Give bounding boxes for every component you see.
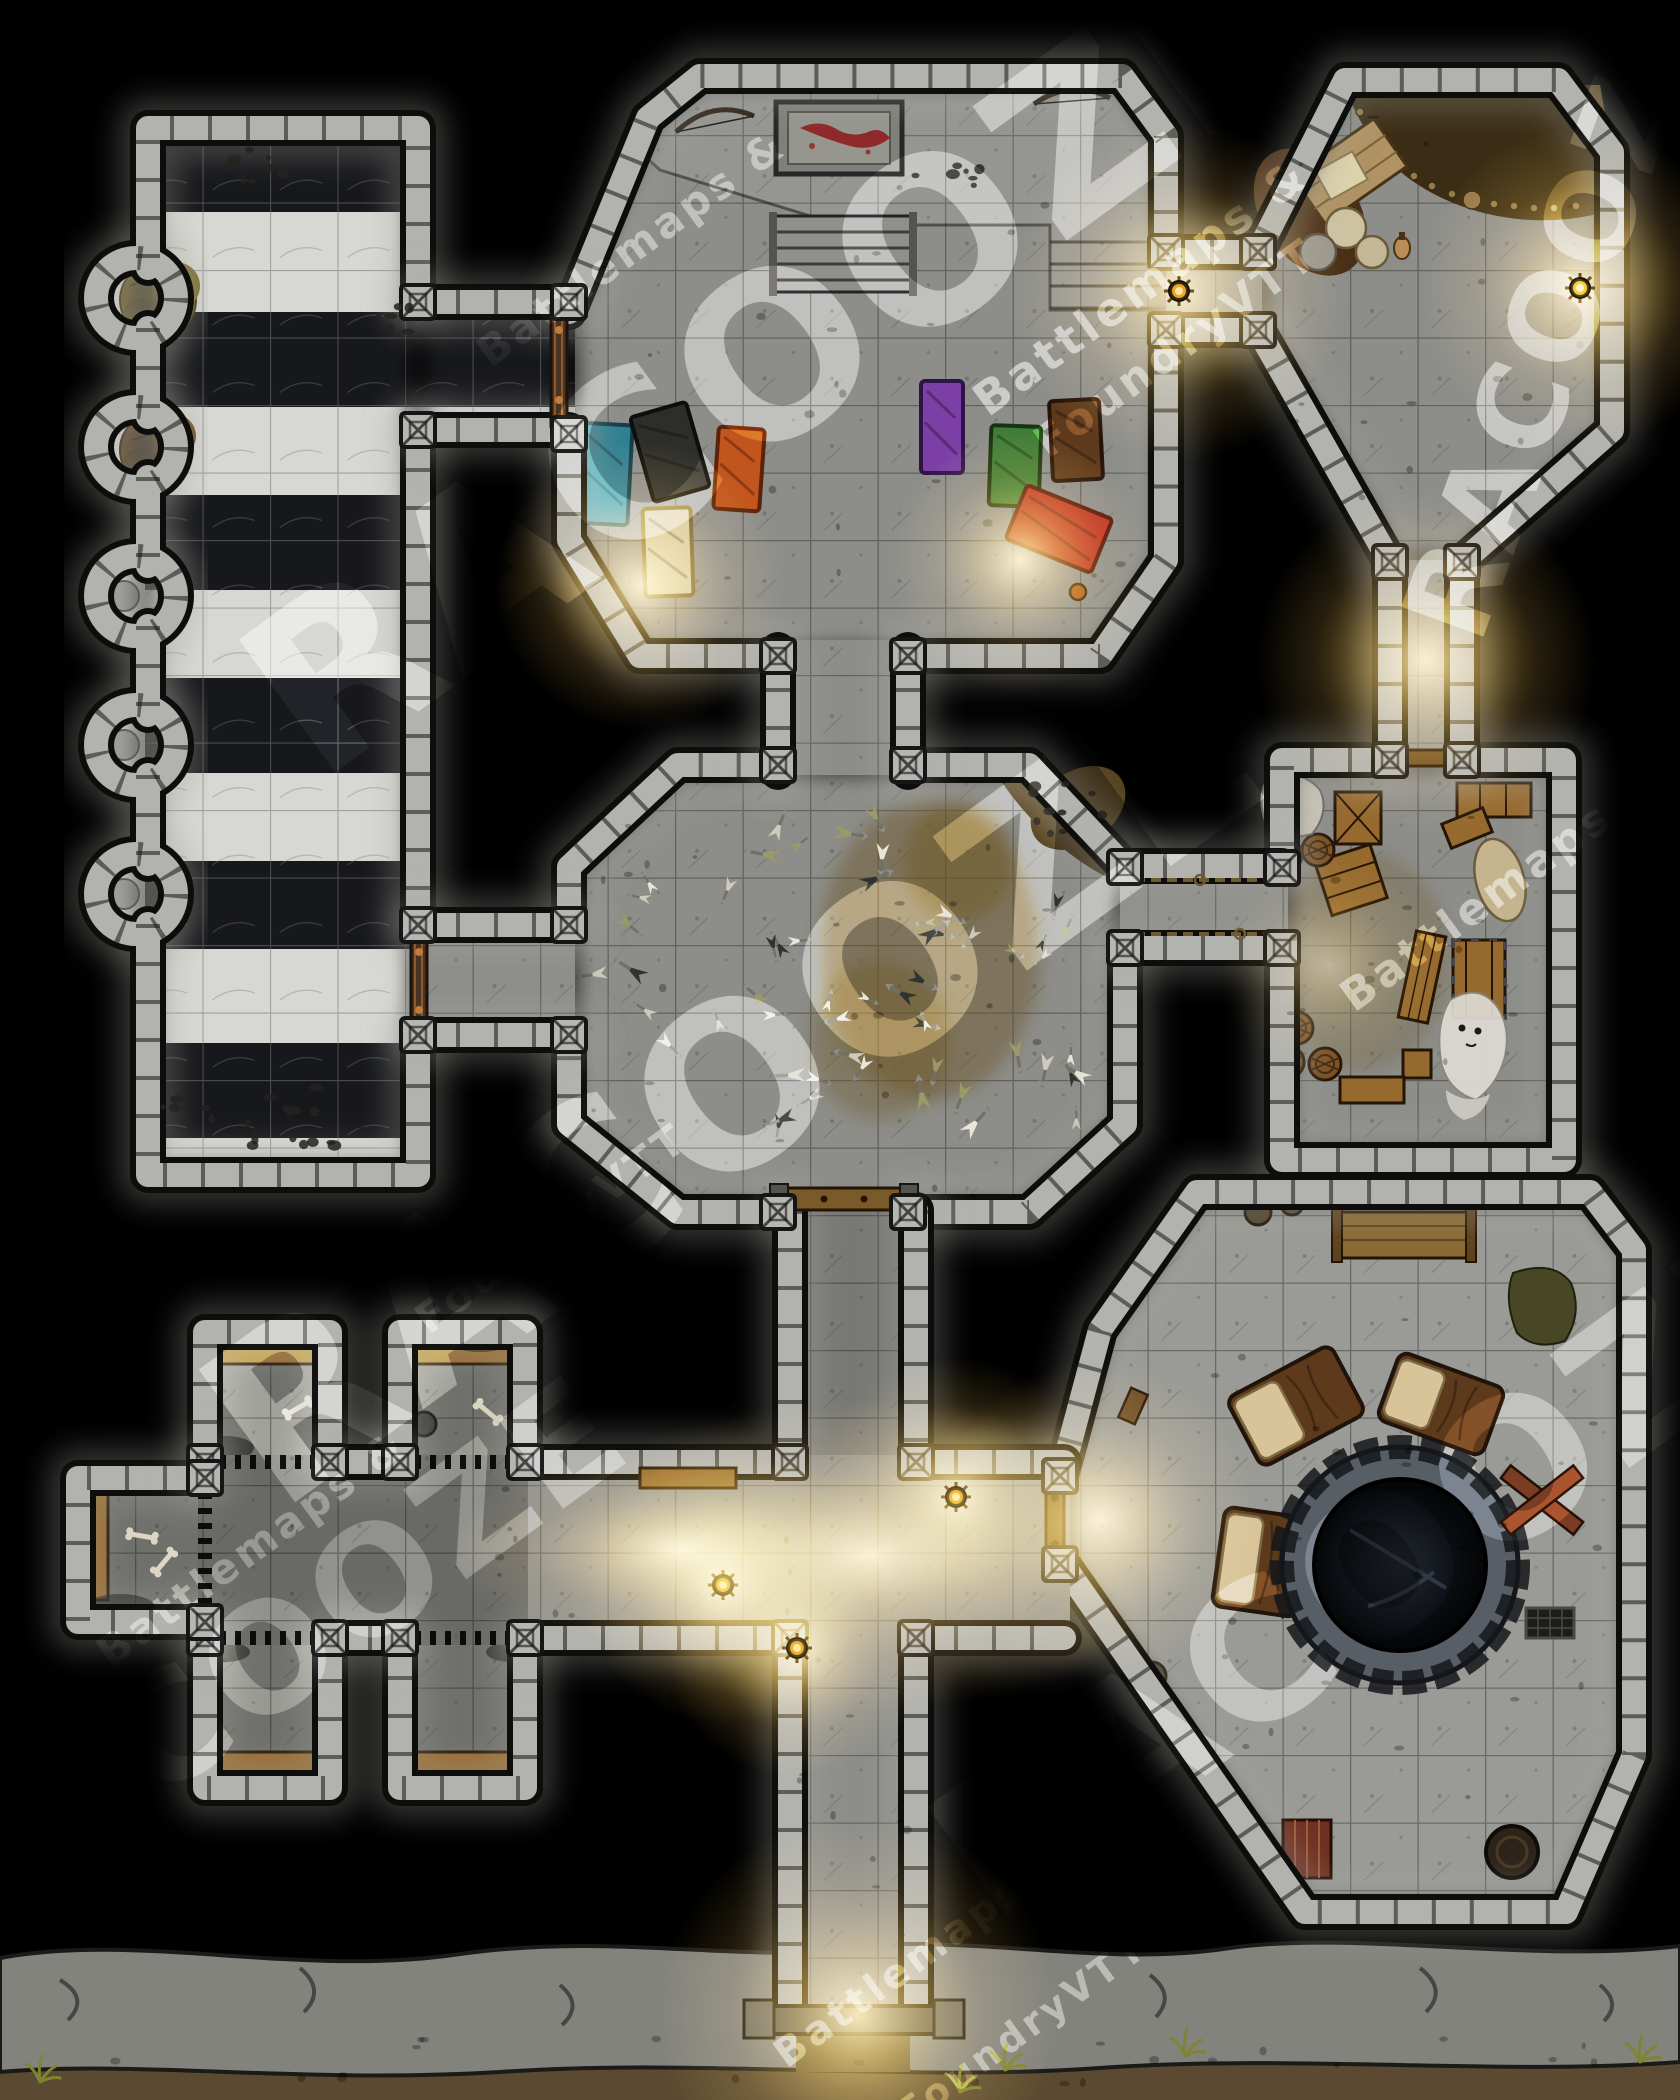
rubble-stone [310, 1107, 320, 1117]
pebble [1007, 229, 1015, 235]
rubble-stone [246, 179, 257, 184]
pillar [188, 1605, 222, 1639]
pebble [1297, 1537, 1303, 1541]
pebble [625, 824, 631, 828]
pebble [1115, 561, 1126, 567]
rubble-stone [245, 147, 254, 153]
rubble-stone [267, 164, 275, 173]
pebble [1269, 1728, 1274, 1736]
rubble-stone [971, 183, 977, 188]
pebble [1291, 419, 1299, 424]
rubble-stone [359, 1126, 365, 1131]
pebble [797, 1777, 803, 1783]
rubble-stone [952, 163, 962, 170]
pebble [1040, 202, 1049, 209]
pillar [761, 1195, 795, 1229]
pebble [652, 2036, 661, 2042]
pebble [657, 1119, 665, 1123]
pebble [1290, 934, 1298, 941]
cloth-pile [1300, 234, 1336, 270]
pillar [1043, 1459, 1077, 1493]
pillar [552, 1018, 586, 1052]
pebble [1287, 1011, 1296, 1015]
pebble [1465, 1795, 1470, 1799]
rubble-stone [173, 1097, 185, 1102]
pebble [1009, 954, 1015, 963]
pebble [1259, 2047, 1266, 2056]
pebble [1033, 1039, 1042, 1045]
pillar [1149, 235, 1183, 269]
pillar [761, 748, 795, 782]
pebble [1478, 279, 1486, 285]
pebble [1312, 1426, 1319, 1431]
pillar [899, 1445, 933, 1479]
pebble [878, 1064, 882, 1068]
clay-jug [1070, 584, 1086, 600]
pebble [1591, 2058, 1598, 2067]
pebble [830, 1811, 836, 1820]
pebble [950, 974, 961, 981]
pebble [1330, 877, 1341, 884]
lantern-icon [782, 1633, 812, 1663]
pebble [1222, 1654, 1229, 1659]
pillar [1241, 313, 1275, 347]
pebble [1080, 2078, 1086, 2087]
pebble [1401, 1318, 1408, 1321]
pebble [870, 1856, 876, 1862]
pebble [601, 876, 606, 885]
pebble [624, 872, 633, 877]
rubble-stone [1097, 811, 1107, 819]
pebble [894, 901, 904, 906]
pebble [810, 1091, 817, 1098]
pebble [897, 1820, 903, 1823]
pebble [507, 1527, 512, 1531]
pebble [1360, 420, 1367, 424]
pillar [1445, 743, 1479, 777]
rubble-stone [1061, 781, 1070, 787]
pebble [648, 353, 652, 357]
pillar [1043, 1547, 1077, 1581]
pebble [827, 327, 838, 332]
pebble [1300, 1008, 1306, 1012]
rubble-stone [394, 303, 403, 310]
rubble-stone [228, 155, 235, 162]
pebble [412, 2045, 421, 2049]
pebble [1406, 401, 1417, 405]
rubble-stone [405, 303, 414, 313]
pebble [1567, 205, 1573, 208]
pebble [495, 1554, 505, 1561]
pillar [508, 1621, 542, 1655]
bedroll [1049, 399, 1103, 482]
lantern-icon [708, 1570, 738, 1600]
pillar [401, 1018, 435, 1052]
pebble [932, 1185, 938, 1193]
pebble [1439, 2036, 1447, 2041]
pillar [552, 285, 586, 319]
rubble-stone [376, 313, 381, 318]
barred-door [551, 306, 567, 426]
pebble [882, 1091, 890, 1098]
pebble [1414, 1571, 1423, 1578]
pebble [591, 1108, 596, 1112]
floor-grate [1526, 1608, 1574, 1638]
pebble [971, 2078, 980, 2086]
stairs [769, 212, 917, 296]
pebble [497, 1573, 502, 1577]
rubble-stone [201, 1105, 209, 1112]
pillar [891, 1195, 925, 1229]
pillar [1108, 850, 1142, 884]
pillar [401, 285, 435, 319]
bedroll [642, 507, 693, 597]
pillar [313, 1621, 347, 1655]
pillar [313, 1445, 347, 1479]
pebble [776, 1139, 785, 1143]
pebble [804, 410, 815, 418]
pebble [1424, 141, 1429, 146]
pebble [1593, 1545, 1603, 1552]
lantern-icon [1565, 273, 1595, 303]
pebble [553, 1610, 559, 1618]
pebble [1299, 162, 1303, 166]
pebble [1238, 1354, 1246, 1361]
rubble-stone [249, 1130, 256, 1139]
pebble [635, 374, 645, 380]
rubble-stone [385, 324, 396, 332]
pebble [1468, 1511, 1473, 1518]
pillar [1373, 545, 1407, 579]
pebble [1299, 403, 1305, 406]
pillar [761, 639, 795, 673]
pebble [834, 381, 838, 388]
bloody-sign [776, 102, 902, 174]
pebble [501, 1486, 510, 1492]
pebble [815, 1657, 822, 1663]
pebble [839, 389, 847, 397]
pebble [1457, 1547, 1466, 1551]
pebble [756, 313, 766, 320]
pillar [1108, 931, 1142, 965]
pebble [1368, 962, 1375, 966]
rubble-stone [963, 169, 968, 174]
pebble [1096, 2042, 1105, 2046]
rubble-stone [974, 164, 984, 174]
pebble [837, 569, 841, 577]
pebble [513, 1535, 517, 1542]
pebble [872, 251, 881, 256]
pebble [1508, 1012, 1518, 1016]
rubble-stone [278, 169, 289, 179]
rubble-stone [1059, 829, 1067, 834]
pebble [1579, 1682, 1584, 1690]
pebble [1059, 2081, 1069, 2086]
pillar [552, 417, 586, 451]
pebble [1402, 905, 1412, 910]
rubble-stone [307, 1137, 319, 1147]
bedroll [713, 426, 765, 511]
pebble [1589, 1421, 1598, 1425]
pebble [927, 323, 935, 326]
rubble-stone [1088, 791, 1095, 796]
pillar [383, 1621, 417, 1655]
pebble [1364, 976, 1375, 984]
pillar [401, 413, 435, 447]
pebble [731, 2074, 739, 2083]
rubble-stone [1058, 810, 1067, 816]
pebble [902, 1826, 912, 1834]
pebble [1401, 1462, 1411, 1467]
pebble [788, 1569, 793, 1575]
rubble-stone [299, 1140, 308, 1149]
pebble [1208, 2058, 1217, 2063]
barrel [1309, 1048, 1341, 1080]
pebble [1467, 816, 1475, 819]
pebble [1359, 495, 1366, 501]
pebble [1455, 946, 1462, 953]
pebble [110, 2058, 120, 2065]
rubble-stone [384, 313, 397, 319]
lantern-icon [941, 1482, 971, 1512]
rubble-stone [968, 176, 977, 181]
pebble [1149, 2056, 1159, 2064]
pebble [1443, 1058, 1447, 1065]
pebble [1211, 1373, 1220, 1378]
rubble-stone [264, 1094, 277, 1100]
pebble [949, 901, 957, 906]
pillar [1265, 851, 1299, 885]
rubble-stone [1033, 817, 1040, 825]
rubble-stone [245, 1119, 250, 1129]
pebble [1475, 919, 1484, 923]
pebble [1576, 340, 1584, 349]
pillar [773, 1445, 807, 1479]
rubble-stone [289, 1133, 296, 1142]
pebble [1242, 1744, 1249, 1749]
pebble [1091, 573, 1097, 577]
pebble [1406, 466, 1413, 474]
pebble [298, 2075, 306, 2082]
pillar [891, 639, 925, 673]
pebble [644, 1081, 654, 1085]
pebble [693, 855, 698, 858]
pebble [873, 1012, 884, 1019]
pebble [932, 479, 941, 483]
small-crate [1403, 1050, 1431, 1078]
pebble [785, 1608, 790, 1615]
pebble [724, 576, 731, 579]
pebble [897, 185, 903, 190]
rubble-stone [247, 1141, 259, 1150]
pebble [659, 984, 667, 992]
rubble-stone [266, 155, 271, 161]
rubble-stone [401, 329, 415, 335]
pebble [1394, 1746, 1404, 1751]
rubble-stone [169, 1104, 181, 1112]
crate [1335, 792, 1381, 844]
pebble [872, 1885, 880, 1888]
bench [1340, 1077, 1404, 1103]
south-threshold [744, 2000, 964, 2038]
pebble [899, 1934, 905, 1937]
pebble [1368, 116, 1379, 119]
pebble [1481, 238, 1486, 246]
pillar [891, 748, 925, 782]
pillar [1241, 235, 1275, 269]
rubble-stone [1028, 788, 1038, 797]
rubble-stone [326, 1140, 335, 1145]
pebble [1332, 1448, 1341, 1455]
pebble [854, 255, 859, 264]
rubble-stone [208, 1115, 215, 1124]
pebble [1228, 1617, 1237, 1625]
pebble [1493, 376, 1503, 383]
shield [1486, 1826, 1538, 1878]
pebble [1518, 438, 1524, 445]
well-pit [1282, 1447, 1518, 1683]
pillar [1445, 545, 1479, 579]
pebble [983, 519, 993, 527]
rubble-stone [241, 174, 247, 185]
pebble [1498, 1522, 1507, 1528]
rubble-stone [946, 169, 960, 179]
pebble [784, 1536, 788, 1544]
pebble [1522, 393, 1532, 401]
pebble [420, 2037, 429, 2042]
pebble [1558, 1461, 1564, 1465]
rubble-stone [160, 1104, 165, 1109]
pebble [986, 1003, 992, 1008]
pebble [851, 1013, 858, 1020]
pillar [552, 908, 586, 942]
rubble-stone [912, 173, 920, 179]
pebble [799, 1773, 806, 1777]
rubble-stone [1047, 830, 1054, 838]
pillar [1149, 313, 1183, 347]
pebble [1582, 2043, 1586, 2050]
pebble [854, 2060, 864, 2066]
pillar [401, 908, 435, 942]
pebble [1405, 1447, 1413, 1454]
pebble [970, 1194, 977, 1197]
rubble-stone [1043, 807, 1055, 815]
pillar [383, 1445, 417, 1479]
green-cloth [1509, 1268, 1576, 1345]
rubble-stone [287, 1107, 293, 1116]
pebble [337, 2074, 347, 2082]
pebble [846, 1714, 854, 1717]
pebble [986, 844, 990, 851]
sack [1356, 236, 1388, 268]
pebble [769, 486, 777, 494]
pebble [1549, 2057, 1557, 2062]
pillar [508, 1445, 542, 1479]
pebble [1321, 1681, 1330, 1686]
pebble [644, 860, 649, 868]
dungeon-battlemap: RACOOZERACOOZERACOOZERACOOZERACOOZEBattl… [0, 0, 1680, 2100]
pebble [1042, 908, 1051, 911]
pebble [833, 923, 840, 927]
pillar [1373, 743, 1407, 777]
pebble [568, 1613, 575, 1618]
pebble [1334, 2062, 1340, 2068]
pebble [1510, 1697, 1519, 1702]
bedroll [921, 381, 963, 473]
pebble [836, 523, 840, 530]
lantern-icon [1164, 276, 1194, 306]
corridor-bench [640, 1468, 736, 1488]
pillar [188, 1461, 222, 1495]
rubble-stone [310, 1084, 323, 1092]
pillar [899, 1621, 933, 1655]
pebble [1107, 342, 1112, 348]
